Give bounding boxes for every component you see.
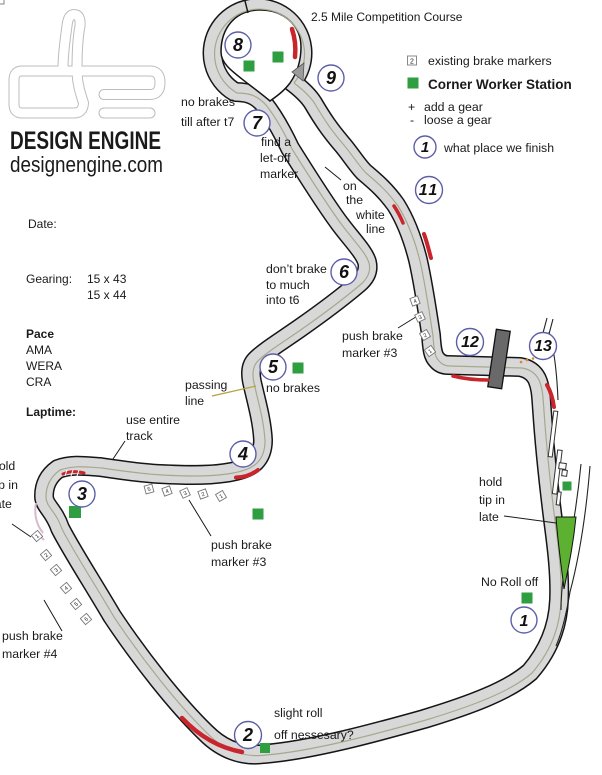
svg-text:designengine.com: designengine.com [10,152,163,177]
svg-text:+: + [408,100,415,114]
svg-text:13: 13 [534,338,552,355]
svg-text:DESIGN ENGINE: DESIGN ENGINE [10,127,161,155]
svg-text:late: late [479,510,499,524]
svg-text:1: 1 [520,613,529,630]
svg-text:No Roll off: No Roll off [481,575,539,589]
svg-text:track: track [126,429,153,443]
svg-text:7: 7 [252,113,263,133]
svg-text:marker: marker [260,167,298,181]
svg-text:CRA: CRA [26,375,51,389]
svg-text:use entire: use entire [126,413,180,427]
svg-text:late: late [0,497,12,511]
svg-text:marker #3: marker #3 [211,555,267,569]
svg-text:what place we finish: what place we finish [443,141,554,155]
svg-text:push brake: push brake [2,629,63,643]
svg-text:tip in: tip in [479,493,505,507]
svg-text:11: 11 [419,182,440,199]
svg-text:tip in: tip in [0,478,18,492]
svg-text:Laptime:: Laptime: [26,405,76,419]
svg-text:let-off: let-off [260,151,291,165]
svg-text:no brakes: no brakes [266,381,320,395]
svg-text:12: 12 [461,334,479,351]
svg-text:15 x 44: 15 x 44 [87,288,127,302]
svg-text:2: 2 [410,59,414,66]
svg-text:Date:: Date: [28,217,57,231]
svg-text:off nessesary?: off nessesary? [274,728,354,742]
svg-text:AMA: AMA [26,343,52,357]
svg-text:6: 6 [339,262,350,282]
svg-text:find a: find a [261,135,291,149]
svg-text:to much: to much [266,278,310,292]
svg-text:1: 1 [421,139,429,156]
svg-text:2: 2 [242,725,253,745]
svg-text:Corner Worker Station: Corner Worker Station [428,77,572,92]
svg-text:line: line [185,394,204,408]
svg-text:don’t brake: don’t brake [266,262,327,276]
svg-text:slight roll: slight roll [274,706,323,720]
svg-text:hold: hold [0,459,15,473]
svg-text:4: 4 [237,444,248,464]
svg-text:Pace: Pace [26,327,54,341]
svg-text:push brake: push brake [342,329,403,343]
svg-text:WERA: WERA [26,359,62,373]
svg-text:line: line [366,222,385,236]
svg-text:8: 8 [233,35,243,55]
svg-text:marker #4: marker #4 [2,647,58,661]
svg-text:2.5 Mile Competition Course: 2.5 Mile Competition Course [311,10,463,24]
svg-text:5: 5 [268,357,279,377]
svg-text:white: white [355,208,385,222]
svg-text:9: 9 [326,68,336,88]
svg-text:no brakes: no brakes [181,95,235,109]
svg-text:existing brake markers: existing brake markers [428,54,552,68]
svg-text:on: on [343,179,357,193]
svg-text:hold: hold [479,475,502,489]
svg-text:-: - [410,113,414,127]
svg-text:marker #3: marker #3 [342,346,398,360]
svg-text:15 x 43: 15 x 43 [87,272,127,286]
svg-text:add a gear: add a gear [424,100,483,114]
svg-text:3: 3 [77,484,87,504]
svg-text:the: the [346,193,363,207]
svg-text:passing: passing [185,378,228,392]
svg-text:till after t7: till after t7 [181,115,234,129]
svg-text:loose a gear: loose a gear [424,113,492,127]
svg-text:into t6: into t6 [266,293,300,307]
svg-text:Gearing:: Gearing: [26,272,72,286]
svg-text:push brake: push brake [211,538,272,552]
